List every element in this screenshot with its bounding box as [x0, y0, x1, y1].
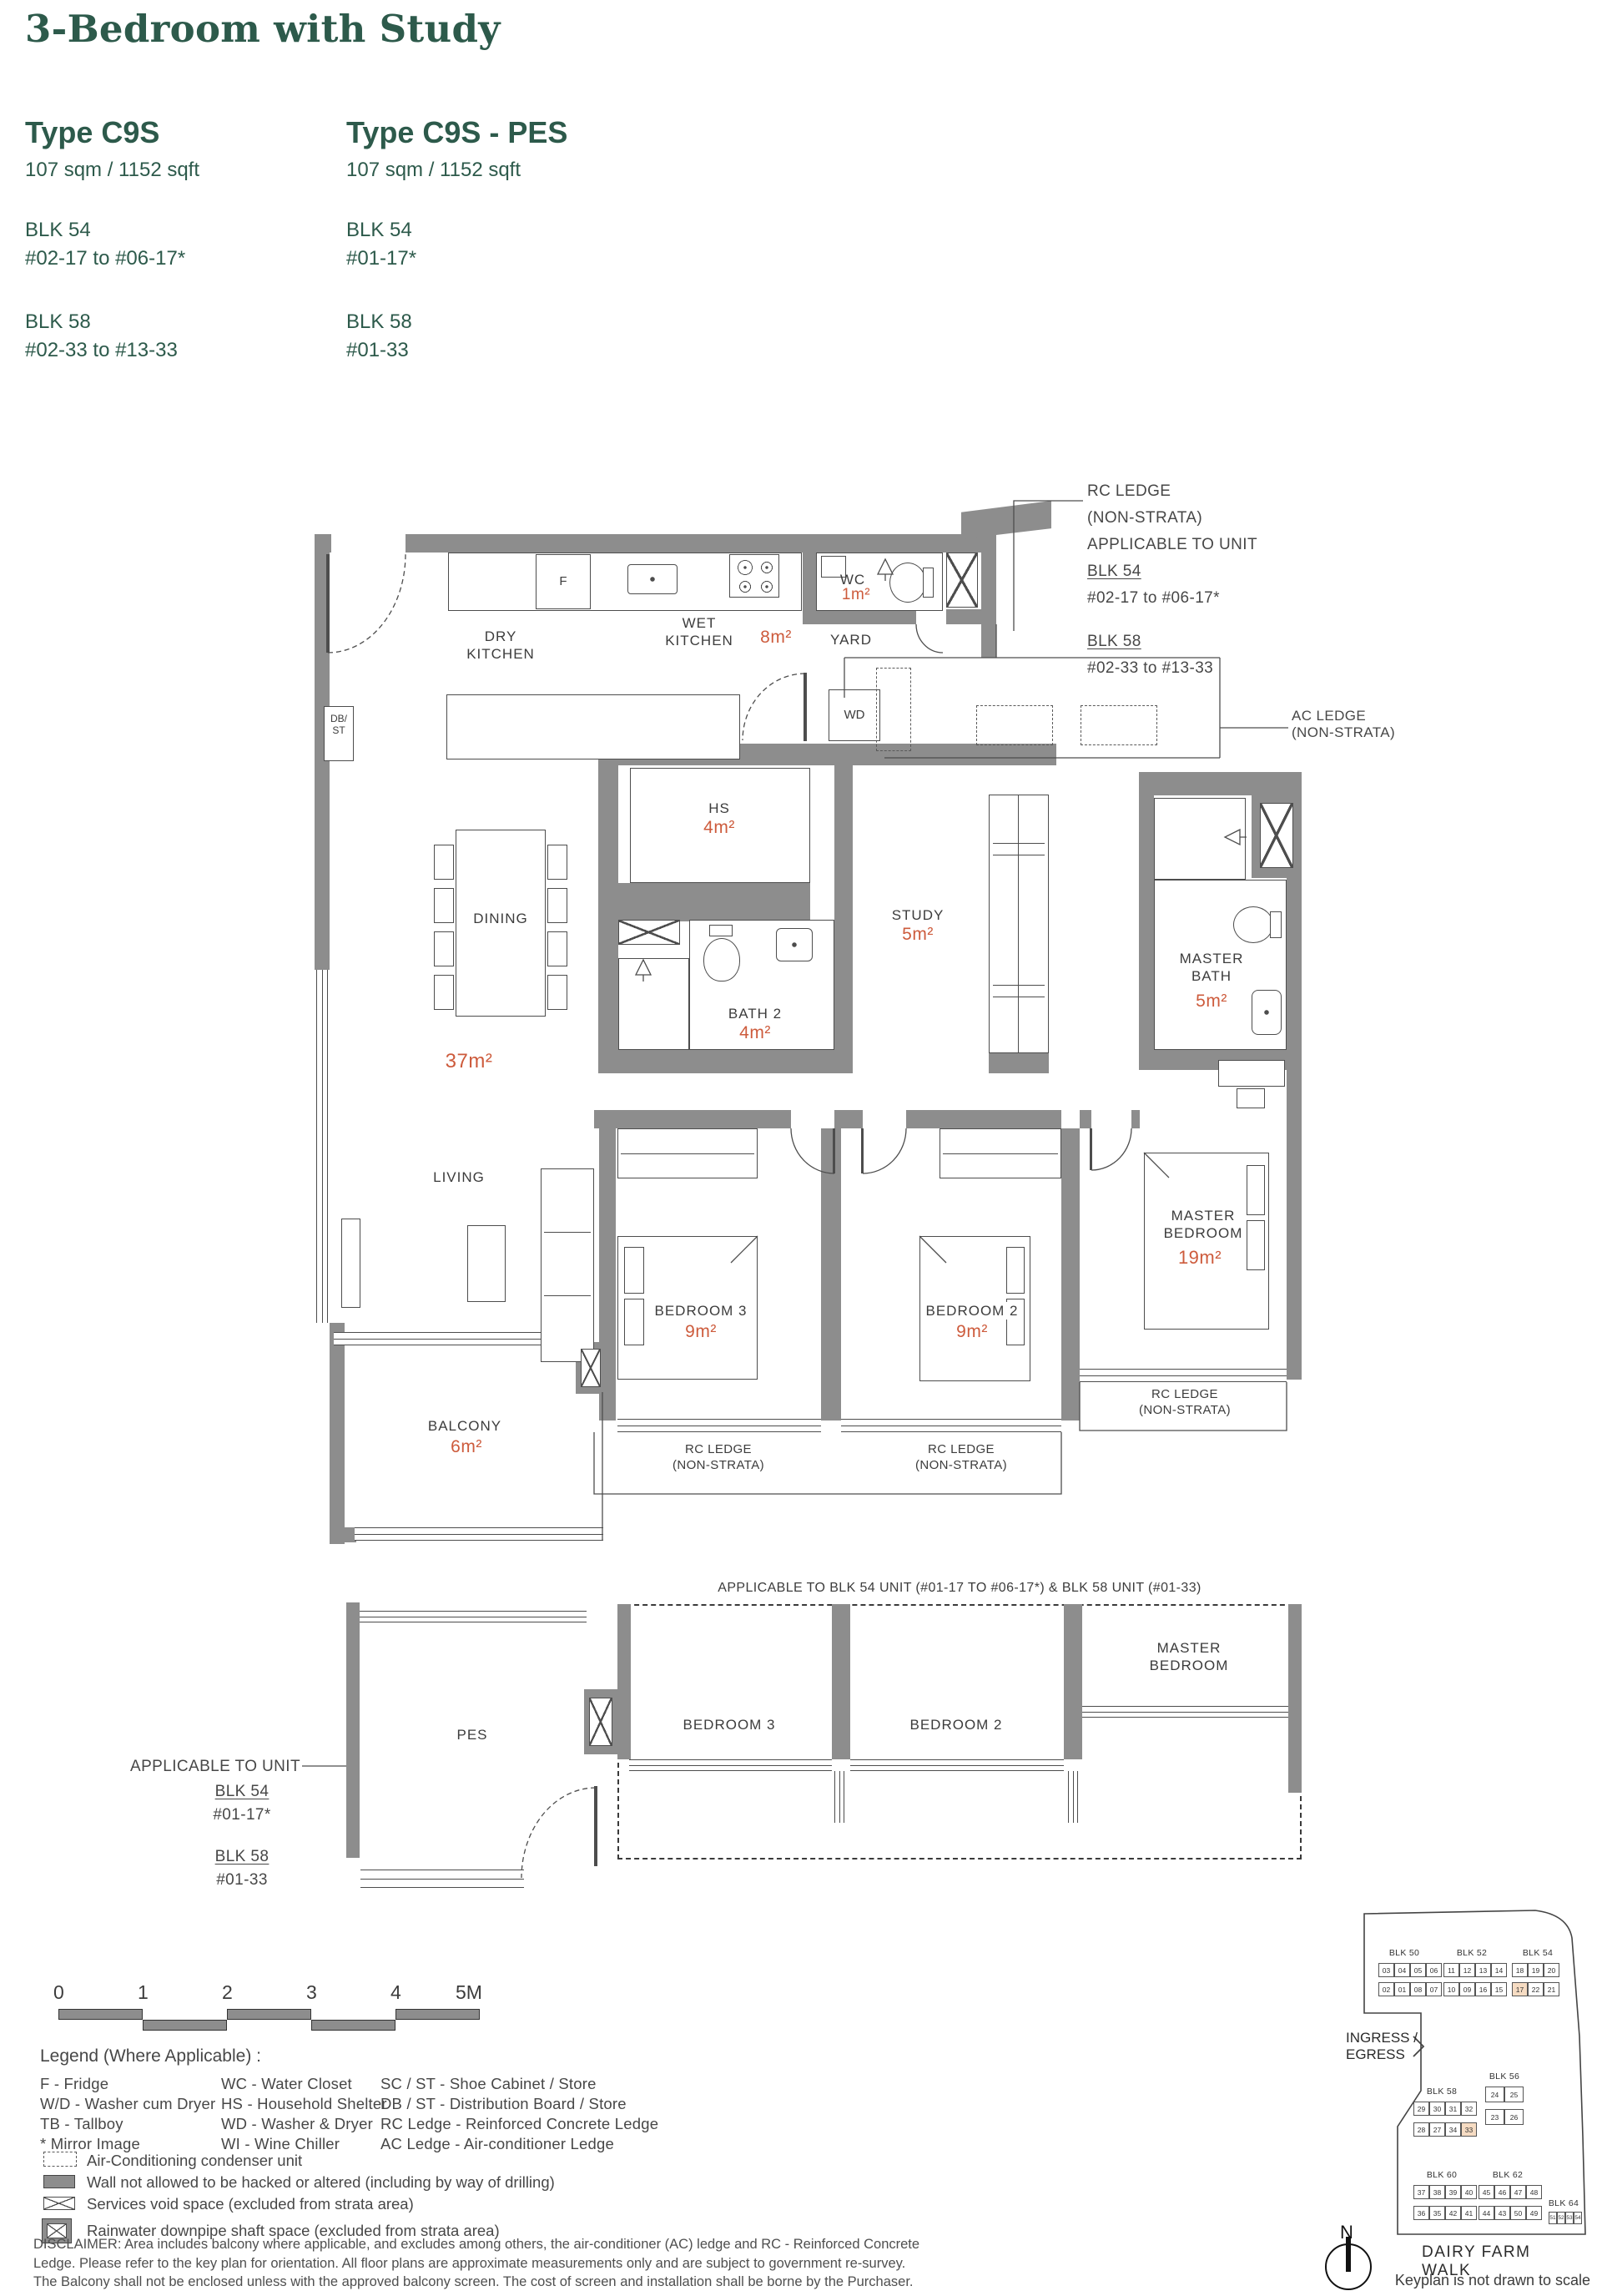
keyplan-block-label: BLK 56 — [1489, 2071, 1519, 2082]
rc-annotation-line3: APPLICABLE TO UNIT — [1087, 536, 1257, 554]
keyplan-unit: 07 — [1426, 1982, 1442, 1996]
keyplan-block-label: BLK 50 — [1389, 1948, 1419, 1958]
keyplan-unit: 25 — [1504, 2087, 1524, 2102]
window-bedroom3 — [617, 1419, 821, 1432]
pes-annotation-blk2-units: #01-33 — [142, 1871, 342, 1890]
type-pes-blk1-units: #01-17* — [346, 247, 416, 270]
masterbath-toilet — [1233, 906, 1273, 943]
wall-bedrooms-top — [834, 1110, 863, 1128]
dining-chair — [434, 845, 454, 880]
keyplan-unit: 35 — [1429, 2206, 1445, 2220]
dining-chair — [547, 931, 567, 966]
legend-item: W/D - Washer cum Dryer — [40, 2095, 215, 2113]
keyplan-unit: 01 — [1394, 1982, 1410, 1996]
legend-item: HS - Household Shelter — [221, 2095, 387, 2113]
scale-bar-segment — [227, 2009, 311, 2020]
area-hs: 4m² — [703, 818, 735, 838]
keyplan-unit: 44 — [1479, 2206, 1494, 2220]
area-study: 5m² — [902, 925, 934, 945]
pes-label-bedroom3: BEDROOM 3 — [683, 1716, 775, 1733]
entry-door-arc — [328, 554, 406, 653]
keyplan-unit: 03 — [1378, 1963, 1394, 1977]
keyplan-unit: 45 — [1479, 2185, 1494, 2199]
legend-item: RC Ledge - Reinforced Concrete Ledge — [380, 2115, 658, 2133]
area-balcony: 6m² — [451, 1437, 482, 1457]
keyplan-unit: 47 — [1510, 2185, 1526, 2199]
rc-annotation-blk2-units: #02-33 to #13-33 — [1087, 659, 1213, 678]
desk — [1218, 1060, 1285, 1087]
scale-label-1: 1 — [138, 1981, 149, 2004]
area-living: 37m² — [446, 1050, 493, 1073]
rc-ledge-label: RC LEDGE (NON-STRATA) — [915, 1442, 1007, 1474]
keyplan-unit: 06 — [1426, 1963, 1442, 1977]
pes-door-arc — [521, 1788, 596, 1878]
room-label-balcony: BALCONY — [428, 1417, 501, 1435]
keyplan-ingress-label: INGRESS / EGRESS — [1346, 2030, 1418, 2064]
rc-annotation-blk1-units: #02-17 to #06-17* — [1087, 589, 1220, 608]
scale-label-5m: 5M — [456, 1981, 482, 2004]
study-cabinet-line — [1018, 795, 1019, 1053]
pes-wall-stub — [1068, 1771, 1078, 1823]
wall-hs-below — [618, 883, 810, 921]
keyplan-unit: 50 — [1510, 2206, 1526, 2220]
rc-ledge-block — [961, 501, 1051, 539]
keyplan-unit: 33 — [1461, 2122, 1477, 2137]
wall-bedrooms-top — [594, 1110, 791, 1128]
wall-top — [406, 534, 844, 553]
pes-caption: APPLICABLE TO BLK 54 UNIT (#01-17 TO #06… — [718, 1581, 1201, 1596]
wall-wc-bottom — [803, 609, 916, 624]
rc-annotation-blk2: BLK 58 — [1087, 633, 1141, 651]
pes-wall — [832, 1604, 850, 1759]
pes-wall-stub — [834, 1771, 844, 1823]
keyplan-unit: 40 — [1461, 2185, 1477, 2199]
wc-door-arc — [916, 624, 943, 653]
type-pes-blk1: BLK 54 — [346, 219, 412, 242]
console-table — [341, 1219, 360, 1308]
keyplan-unit: 18 — [1512, 1963, 1528, 1977]
type-pes-blk2-units: #01-33 — [346, 339, 409, 362]
rc-annotation-line1: RC LEDGE — [1087, 482, 1171, 501]
keyplan-unit: 23 — [1485, 2109, 1504, 2125]
ac-condenser-unit — [876, 668, 911, 751]
wall-bath-bottom — [618, 1050, 834, 1073]
pes-wall — [617, 1604, 631, 1759]
services-void-box — [581, 1349, 601, 1387]
keyplan-unit: 04 — [1394, 1963, 1410, 1977]
study-cabinet-shelf — [993, 855, 1045, 855]
keyplan-unit: 31 — [1445, 2102, 1461, 2116]
dining-chair — [547, 975, 567, 1010]
keyplan-unit: 54 — [1574, 2212, 1582, 2224]
keyplan-unit: 24 — [1485, 2087, 1504, 2102]
pes-wall — [1064, 1604, 1082, 1759]
study-cabinet-shelf — [993, 997, 1045, 997]
legend-item: DB / ST - Distribution Board / Store — [380, 2095, 627, 2113]
keyplan-block-label: BLK 54 — [1523, 1948, 1553, 1958]
scale-label-3: 3 — [306, 1981, 317, 2004]
legend-item: AC Ledge - Air-conditioner Ledge — [380, 2135, 614, 2153]
room-label-dry-kitchen: DRY KITCHEN — [466, 628, 535, 664]
room-label-bedroom3: BEDROOM 3 — [654, 1302, 747, 1320]
keyplan-unit: 28 — [1413, 2122, 1429, 2137]
keyplan-unit: 53 — [1565, 2212, 1574, 2224]
keyplan-unit: 11 — [1443, 1963, 1459, 1977]
type-c9s-blk1-units: #02-17 to #06-17* — [25, 247, 185, 270]
area-wet-kitchen: 8m² — [760, 628, 792, 648]
keyplan-unit: 37 — [1413, 2185, 1429, 2199]
keyplan-unit: 16 — [1475, 1982, 1491, 1996]
keyplan-note: Keyplan is not drawn to scale — [1395, 2272, 1590, 2289]
keyplan-block-label: BLK 62 — [1493, 2170, 1523, 2180]
bath2-toilet-tank — [709, 925, 733, 936]
legend-icon-services-void — [43, 2197, 75, 2210]
dining-chair — [547, 845, 567, 880]
keyplan-unit: 10 — [1443, 1982, 1459, 1996]
area-bedroom3: 9m² — [685, 1322, 717, 1342]
area-bath2: 4m² — [739, 1023, 771, 1043]
type-area-c9s: 107 sqm / 1152 sqft — [25, 159, 199, 182]
pes-wall — [1288, 1604, 1302, 1793]
keyplan-block-label: BLK 58 — [1427, 2087, 1457, 2097]
keyplan-unit: 22 — [1528, 1982, 1544, 1996]
keyplan-unit: 32 — [1461, 2102, 1477, 2116]
north-label: N — [1340, 2222, 1353, 2243]
wall-master-top — [1080, 1110, 1091, 1128]
wall-bed2-master — [1061, 1128, 1080, 1420]
pes-annotation-line1: APPLICABLE TO UNIT — [100, 1758, 300, 1776]
master-door-arc — [1091, 1128, 1131, 1170]
wall-wc-bottom — [946, 609, 981, 624]
pes-label-bedroom2: BEDROOM 2 — [909, 1716, 1002, 1733]
wetkitchen-door-arc — [743, 674, 805, 740]
door-leaf — [804, 673, 807, 741]
wall-masterbath-left — [1139, 793, 1154, 1068]
scale-bar-segment — [58, 2009, 143, 2020]
area-wc: 1m² — [842, 586, 870, 604]
floorplan-page: 3-Bedroom with Study Type C9S 107 sqm / … — [0, 0, 1602, 2296]
keyplan-unit: 48 — [1526, 2185, 1542, 2199]
window-living-left — [316, 970, 328, 1323]
scale-bar-segment — [311, 2020, 395, 2031]
type-c9s-blk2: BLK 58 — [25, 310, 91, 334]
door-leaf — [1090, 1128, 1092, 1170]
island-counter — [446, 694, 740, 759]
keyplan-unit: 14 — [1491, 1963, 1507, 1977]
services-void-box — [946, 553, 978, 608]
room-label-yard: YARD — [830, 631, 872, 648]
wall-wc-right — [981, 534, 996, 658]
pes-left-wall — [346, 1602, 360, 1858]
dining-chair — [434, 888, 454, 923]
scale-label-4: 4 — [390, 1981, 401, 2004]
keyplan-unit: 05 — [1410, 1963, 1426, 1977]
study-cabinet — [989, 795, 1049, 1053]
room-label-bath2: BATH 2 — [728, 1005, 782, 1022]
study-cabinet-shelf — [993, 985, 1045, 986]
legend-item: WD - Washer & Dryer — [221, 2115, 373, 2133]
rc-annotation-blk1: BLK 54 — [1087, 563, 1141, 581]
keyplan-unit: 39 — [1445, 2185, 1461, 2199]
type-area-c9s-pes: 107 sqm / 1152 sqft — [346, 159, 521, 182]
ac-condenser-unit — [1081, 705, 1157, 745]
area-bedroom2: 9m² — [956, 1322, 988, 1342]
legend-symbol-label: Services void space (excluded from strat… — [87, 2195, 414, 2213]
pillow — [1006, 1247, 1025, 1294]
sofa-cushion-line — [544, 1232, 591, 1233]
door-leaf — [861, 1128, 864, 1173]
legend-item: F - Fridge — [40, 2075, 108, 2093]
keyplan-unit: 12 — [1459, 1963, 1475, 1977]
keyplan-block-label: BLK 52 — [1457, 1948, 1487, 1958]
keyplan-unit: 09 — [1459, 1982, 1475, 1996]
wall-balcony-corner — [330, 1527, 356, 1542]
dining-chair — [434, 931, 454, 966]
pes-top-window — [360, 1611, 587, 1622]
room-label-master-bedroom: MASTER BEDROOM — [1164, 1207, 1243, 1243]
coffee-table — [467, 1225, 506, 1302]
rainwater-shaft-box — [1260, 803, 1293, 868]
keyplan-block-label: BLK 60 — [1427, 2170, 1457, 2180]
scale-bar-segment — [395, 2009, 480, 2020]
keyplan-unit: 13 — [1475, 1963, 1491, 1977]
type-name-c9s-pes: Type C9S - PES — [346, 115, 567, 150]
legend-item: * Mirror Image — [40, 2135, 140, 2153]
legend-icon-ac-condenser — [43, 2152, 77, 2167]
masterbath-sink — [1252, 990, 1282, 1035]
keyplan-unit: 27 — [1429, 2122, 1445, 2137]
door-leaf — [594, 1786, 597, 1866]
keyplan-unit: 20 — [1544, 1963, 1559, 1977]
masterbath-toilet-tank — [1270, 911, 1282, 938]
keyplan-unit: 46 — [1494, 2185, 1510, 2199]
master-shower — [1154, 798, 1246, 880]
keyplan-block-label: BLK 64 — [1549, 2198, 1579, 2208]
wardrobe-line — [621, 1153, 754, 1154]
keyplan-unit: 42 — [1445, 2206, 1461, 2220]
pes-window-bedroom2 — [850, 1759, 1064, 1771]
pillow — [1247, 1220, 1265, 1270]
dining-chair — [434, 975, 454, 1010]
rc-ledge-label: RC LEDGE (NON-STRATA) — [1139, 1387, 1231, 1419]
stove — [729, 554, 779, 598]
area-master-bedroom: 19m² — [1178, 1247, 1222, 1269]
wc-toilet-tank — [923, 568, 934, 598]
room-label-bedroom2: BEDROOM 2 — [925, 1302, 1018, 1320]
wall-master-top — [1131, 1110, 1140, 1128]
pillow — [1247, 1165, 1265, 1215]
wall-balcony-left — [330, 1323, 345, 1544]
rc-annotation-line2: (NON-STRATA) — [1087, 509, 1202, 527]
keyplan-unit: 21 — [1544, 1982, 1559, 1996]
wardrobe-line — [943, 1153, 1058, 1154]
legend-item: TB - Tallboy — [40, 2115, 123, 2133]
legend-symbol-label: Air-Conditioning condenser unit — [87, 2152, 302, 2170]
keyplan-unit: 15 — [1491, 1982, 1507, 1996]
ac-condenser-unit — [976, 705, 1053, 745]
room-label-dining: DINING — [471, 910, 530, 927]
keyplan-unit: 08 — [1410, 1982, 1426, 1996]
bath2-toilet — [703, 938, 740, 981]
keyplan-unit: 34 — [1445, 2122, 1461, 2137]
fixture-db-st: DB/ ST — [330, 713, 347, 737]
kitchen-sink — [627, 564, 678, 594]
window-bedroom2 — [841, 1419, 1061, 1432]
keyplan-unit: 30 — [1429, 2102, 1445, 2116]
bedroom2-door-arc — [863, 1128, 906, 1173]
services-void-box — [618, 920, 680, 945]
keyplan-unit: 49 — [1526, 2206, 1542, 2220]
area-master-bath: 5m² — [1196, 992, 1227, 1012]
type-c9s-blk1: BLK 54 — [25, 219, 91, 242]
scale-label-0: 0 — [53, 1981, 64, 2004]
rc-ledge-label: RC LEDGE (NON-STRATA) — [673, 1442, 764, 1474]
balcony-rail — [355, 1527, 603, 1541]
keyplan-unit: 26 — [1504, 2109, 1524, 2125]
pes-window-bedroom3 — [629, 1759, 832, 1771]
chair — [1237, 1088, 1265, 1108]
bath2-sink — [776, 928, 813, 961]
legend-icon-wall — [43, 2175, 75, 2188]
legend-item: SC / ST - Shoe Cabinet / Store — [380, 2075, 597, 2093]
fixture-washer-dryer: WD — [844, 708, 865, 724]
keyplan-unit: 29 — [1413, 2102, 1429, 2116]
scale-label-2: 2 — [222, 1981, 233, 2004]
north-compass-icon — [1326, 2244, 1371, 2289]
room-label-study: STUDY — [892, 906, 945, 924]
ac-ledge-annotation: AC LEDGE (NON-STRATA) — [1292, 708, 1395, 741]
wall-hs-left — [598, 744, 618, 1073]
wall-masterbath-top — [1139, 772, 1302, 795]
pillow — [624, 1299, 644, 1345]
type-name-c9s: Type C9S — [25, 115, 159, 150]
pes-annotation-blk1: BLK 54 — [142, 1783, 342, 1801]
sofa — [541, 1168, 594, 1362]
wc-toilet — [889, 563, 926, 603]
keyplan-unit: 02 — [1378, 1982, 1394, 1996]
wall-right — [1287, 795, 1302, 1380]
wall-cabinet-bottom — [989, 1053, 1049, 1073]
keyplan-unit: 41 — [1461, 2206, 1477, 2220]
wall-bedrooms-top — [906, 1110, 1061, 1128]
door-leaf — [326, 554, 330, 653]
fixture-fridge: F — [559, 574, 567, 590]
page-title: 3-Bedroom with Study — [25, 7, 501, 51]
pes-annotation-blk1-units: #01-17* — [142, 1806, 342, 1824]
legend-item: WC - Water Closet — [221, 2075, 352, 2093]
shower-bath2 — [618, 958, 689, 1050]
pes-annotation-blk2: BLK 58 — [142, 1848, 342, 1866]
pes-window-master — [1082, 1706, 1288, 1718]
services-void-box — [589, 1698, 612, 1746]
room-label-hs: HS — [708, 800, 730, 817]
study-cabinet-shelf — [993, 843, 1045, 844]
legend-title: Legend (Where Applicable) : — [40, 2046, 261, 2066]
window-master-bedroom — [1080, 1369, 1287, 1382]
pes-label-master-bedroom: MASTER BEDROOM — [1150, 1639, 1229, 1675]
room-label-master-bath: MASTER BATH — [1180, 950, 1244, 986]
legend-symbol-label: Wall not allowed to be hacked or altered… — [87, 2173, 555, 2192]
room-label-living: LIVING — [433, 1168, 485, 1186]
disclaimer-text: DISCLAIMER: Area includes balcony where … — [33, 2235, 928, 2292]
type-pes-blk2: BLK 58 — [346, 310, 412, 334]
keyplan-unit: 52 — [1557, 2212, 1565, 2224]
keyplan-unit: 17 — [1512, 1982, 1528, 1996]
plan-linework — [0, 0, 1602, 2296]
scale-bar-segment — [143, 2020, 227, 2031]
room-label-pes: PES — [456, 1726, 487, 1743]
type-c9s-blk2-units: #02-33 to #13-33 — [25, 339, 178, 362]
sofa-cushion-line — [544, 1295, 591, 1296]
pes-bench — [360, 1870, 524, 1888]
dining-chair — [547, 888, 567, 923]
keyplan-unit: 36 — [1413, 2206, 1429, 2220]
keyplan-unit: 38 — [1429, 2185, 1445, 2199]
wall-study-left — [834, 744, 853, 1073]
keyplan-unit: 19 — [1528, 1963, 1544, 1977]
keyplan-unit: 43 — [1494, 2206, 1510, 2220]
keyplan-unit: 51 — [1549, 2212, 1557, 2224]
room-label-wet-kitchen: WET KITCHEN — [665, 614, 733, 650]
pillow — [624, 1247, 644, 1294]
legend-item: WI - Wine Chiller — [221, 2135, 340, 2153]
door-leaf — [833, 1128, 835, 1173]
wall-bed3-bed2 — [821, 1128, 841, 1420]
